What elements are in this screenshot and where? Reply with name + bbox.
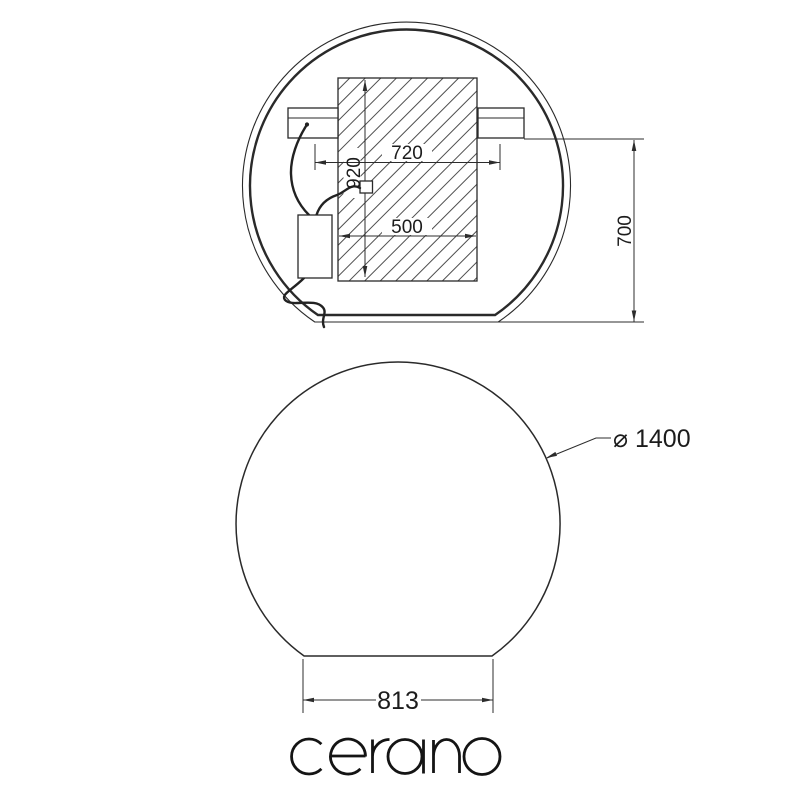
arrowhead [303, 698, 314, 703]
drawing-page: 720 500 920 700 ⌀ 1400 813 [0, 0, 800, 800]
dim-label-720: 720 [391, 143, 423, 164]
logo-letter-a-bowl [388, 740, 422, 774]
arrowhead [632, 140, 637, 151]
logo-letter-n [434, 740, 460, 773]
dim-label-500: 500 [391, 217, 423, 238]
logo-letter-o [464, 739, 500, 775]
cable-end-dot [305, 122, 309, 126]
driver-box [298, 215, 332, 278]
right-bracket-body [478, 108, 524, 138]
dim-label-diameter: ⌀ 1400 [613, 425, 691, 453]
left-bracket [288, 108, 338, 138]
arrowhead [632, 311, 637, 322]
cable-power-cord [284, 278, 325, 327]
front-view: ⌀ 1400 813 [236, 362, 691, 715]
brand-logo [292, 739, 500, 775]
back-view: 720 500 920 700 [243, 22, 645, 327]
arrowhead [546, 452, 557, 458]
logo-letter-e [331, 739, 366, 774]
technical-drawing: 720 500 920 700 ⌀ 1400 813 [0, 0, 800, 800]
arrowhead [315, 160, 326, 165]
dim-label-813: 813 [377, 687, 419, 715]
mirror-front-outline [236, 362, 560, 656]
arrowhead [489, 160, 500, 165]
dimension-813: 813 [303, 659, 493, 715]
right-bracket [478, 108, 524, 138]
dimension-diameter: ⌀ 1400 [546, 425, 691, 458]
dim-label-700: 700 [615, 215, 636, 247]
arrowhead [482, 698, 493, 703]
dim-label-920: 920 [344, 157, 365, 189]
left-bracket-body [288, 108, 338, 138]
logo-letter-c [292, 739, 322, 774]
